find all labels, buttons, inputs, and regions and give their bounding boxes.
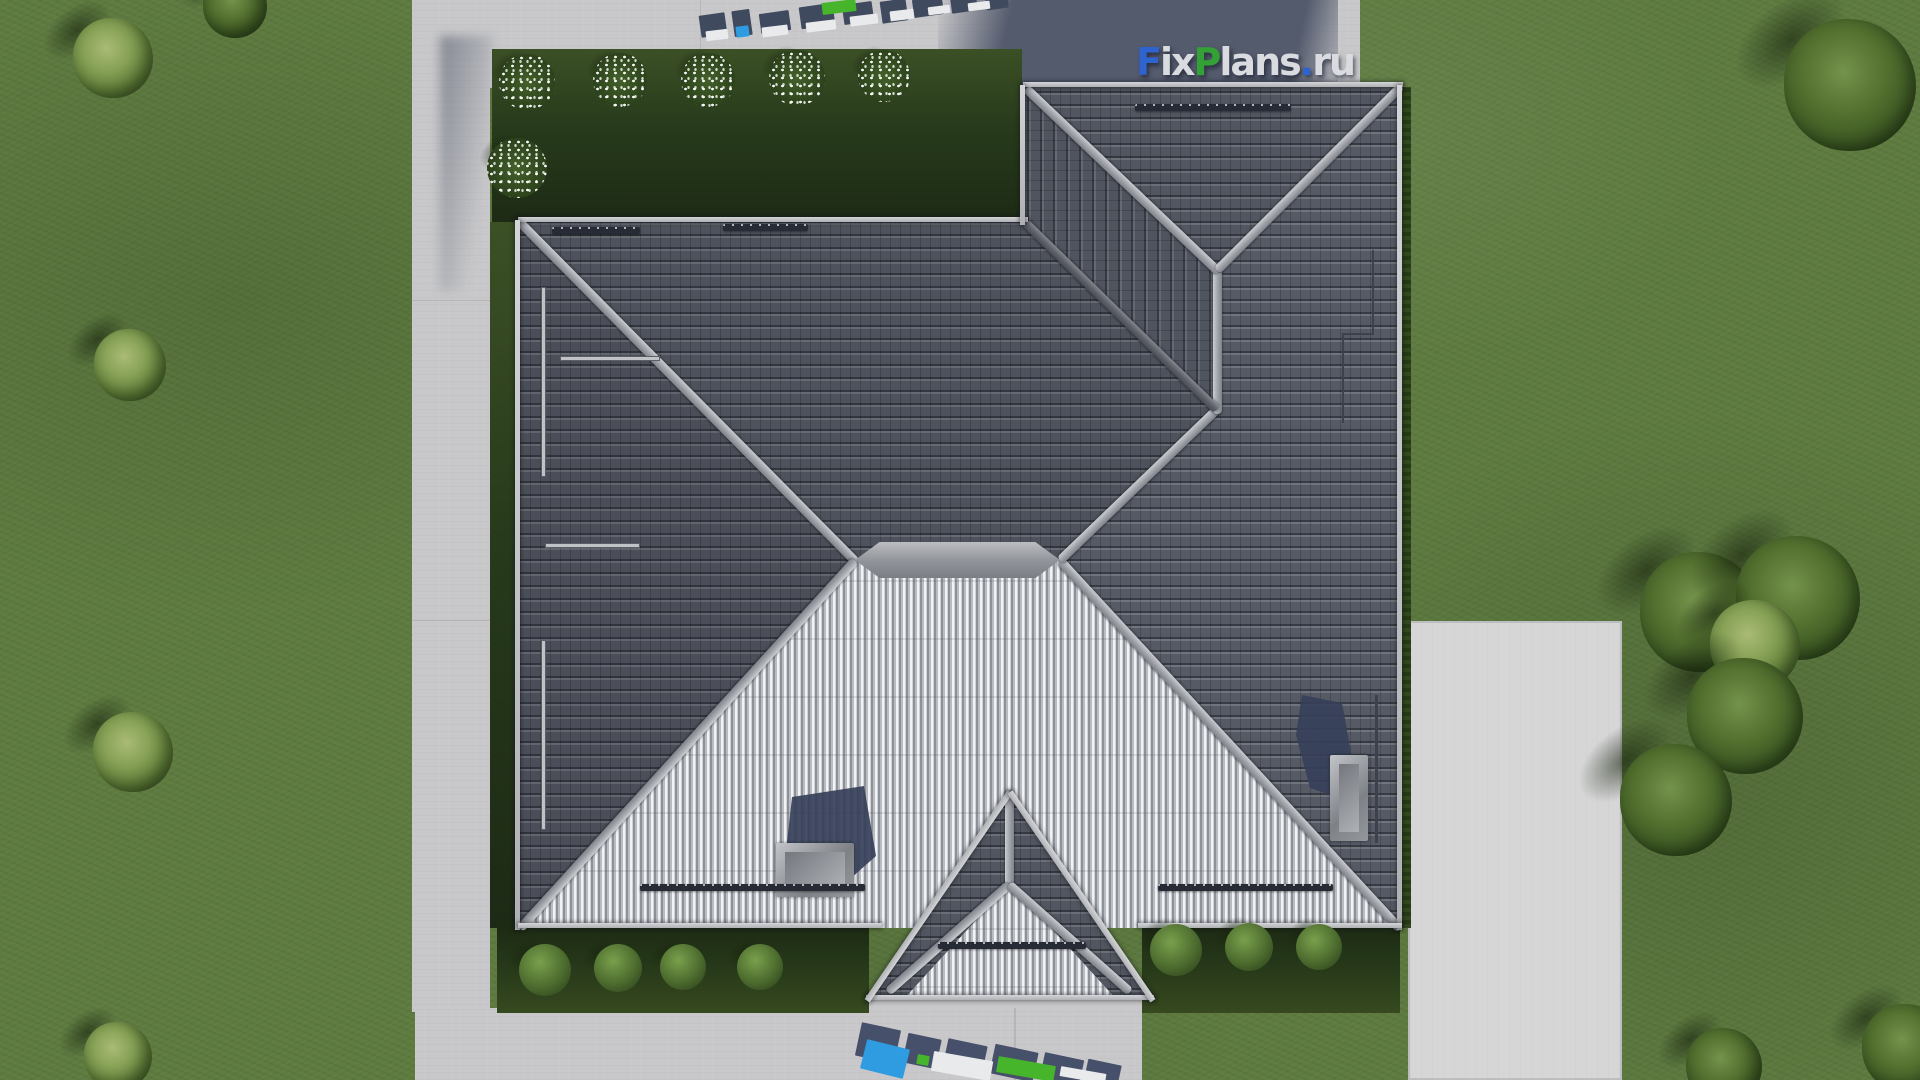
- watermark-letter: P: [1194, 40, 1220, 84]
- bush: [1150, 924, 1202, 976]
- tree: [93, 712, 173, 792]
- aerial-roof-scene: FixPlans.ru: [0, 0, 1920, 1080]
- bush: [737, 944, 783, 990]
- tree: [94, 329, 166, 401]
- watermark-letter: .: [1300, 40, 1312, 84]
- tree: [84, 1022, 152, 1080]
- watermark-letter: s: [1279, 40, 1300, 84]
- tree: [1784, 19, 1916, 151]
- flower-bush: [769, 50, 825, 106]
- watermark-letter: n: [1254, 40, 1279, 84]
- fixplans-watermark: FixPlans.ru: [1136, 40, 1354, 84]
- tree: [1620, 744, 1732, 856]
- bush: [594, 944, 642, 992]
- bush: [1225, 923, 1273, 971]
- flower-bush: [499, 54, 555, 110]
- watermark-letter: a: [1230, 40, 1254, 84]
- flower-bush: [858, 50, 910, 102]
- bush: [519, 944, 571, 996]
- tree: [73, 18, 153, 98]
- watermark-letter: i: [1160, 40, 1171, 84]
- watermark-letter: u: [1329, 40, 1354, 84]
- watermark-letter: l: [1219, 40, 1230, 84]
- flower-bush: [487, 138, 547, 198]
- watermark-letter: x: [1171, 40, 1194, 84]
- bush: [1296, 924, 1342, 970]
- flower-bush: [593, 53, 647, 107]
- flower-bush: [681, 53, 735, 107]
- tree: [1686, 1028, 1762, 1080]
- bush: [660, 944, 706, 990]
- vegetation: [0, 0, 1920, 1080]
- watermark-letter: F: [1136, 40, 1160, 84]
- tree: [203, 0, 267, 38]
- watermark-letter: r: [1312, 40, 1329, 84]
